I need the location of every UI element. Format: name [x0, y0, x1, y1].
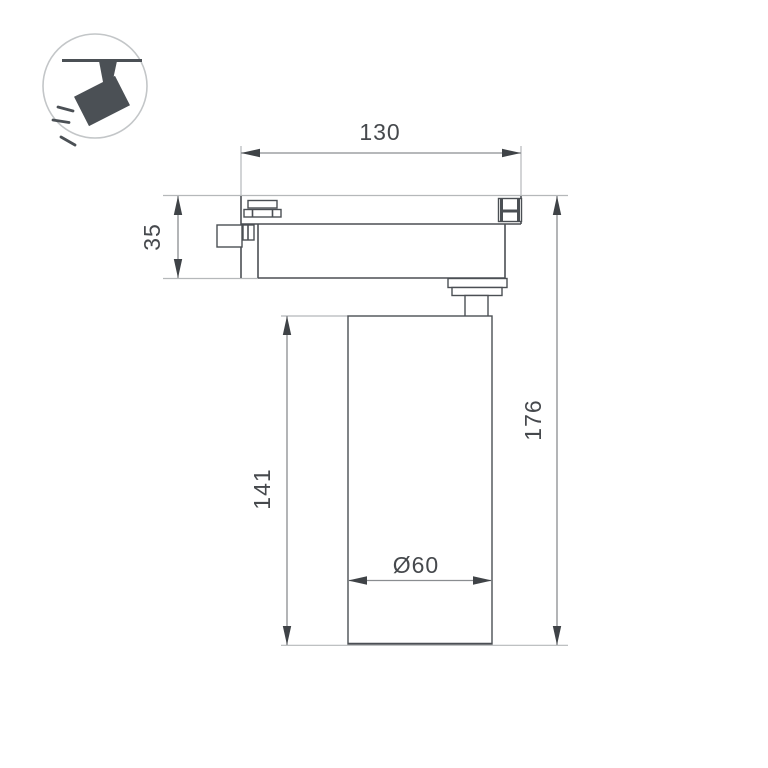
lamp-body: [348, 316, 492, 644]
lamp-cylinder: [348, 316, 492, 644]
dimension-drawing-canvas: 130 35: [0, 0, 768, 768]
arrowhead-down: [174, 259, 182, 278]
connector-step-lower: [452, 288, 502, 296]
connector-step-upper: [448, 279, 507, 288]
swivel-connector: [448, 279, 507, 317]
dim-label-adapter-height: 35: [139, 223, 165, 251]
track-adapter: [217, 196, 522, 278]
arrowhead-right: [502, 149, 521, 157]
dim-label-total-height: 176: [520, 399, 546, 440]
locking-lever: [244, 201, 281, 218]
arrowhead-up: [174, 196, 182, 215]
dim-track-width: 130: [241, 119, 521, 157]
arrowhead-down: [283, 626, 291, 645]
ceiling-spotlight-icon: [43, 34, 147, 145]
dim-label-body-height: 141: [249, 468, 275, 509]
latch-box: [217, 225, 242, 247]
contact-clip: [499, 199, 522, 222]
dim-label-diameter: Ø60: [393, 552, 439, 578]
latch-hook: [243, 225, 254, 240]
dim-body-height: 141: [249, 316, 291, 645]
dim-total-height: 176: [520, 196, 561, 645]
arrowhead-up: [553, 196, 561, 215]
arrowhead-down: [553, 626, 561, 645]
dim-adapter-height: 35: [139, 196, 182, 278]
track-light-dimension-drawing: 130 35: [0, 0, 768, 768]
arrowhead-left: [241, 149, 260, 157]
dim-label-track-width: 130: [359, 119, 400, 145]
connector-stem: [465, 296, 488, 317]
arrowhead-up: [283, 316, 291, 335]
